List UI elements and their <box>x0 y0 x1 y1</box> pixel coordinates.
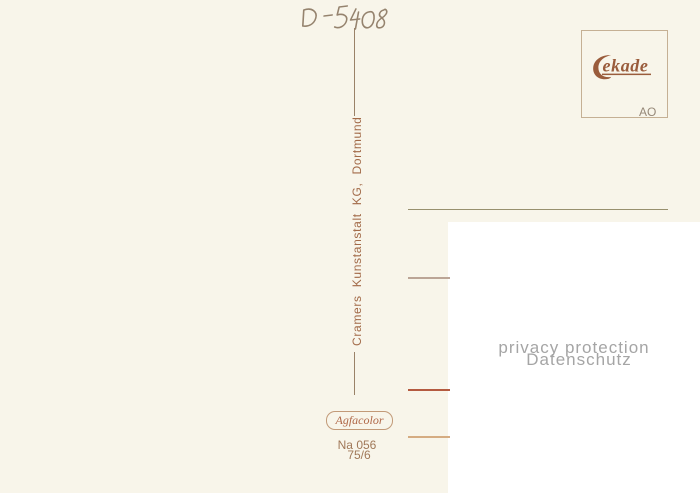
svg-text:ekade: ekade <box>603 56 649 76</box>
